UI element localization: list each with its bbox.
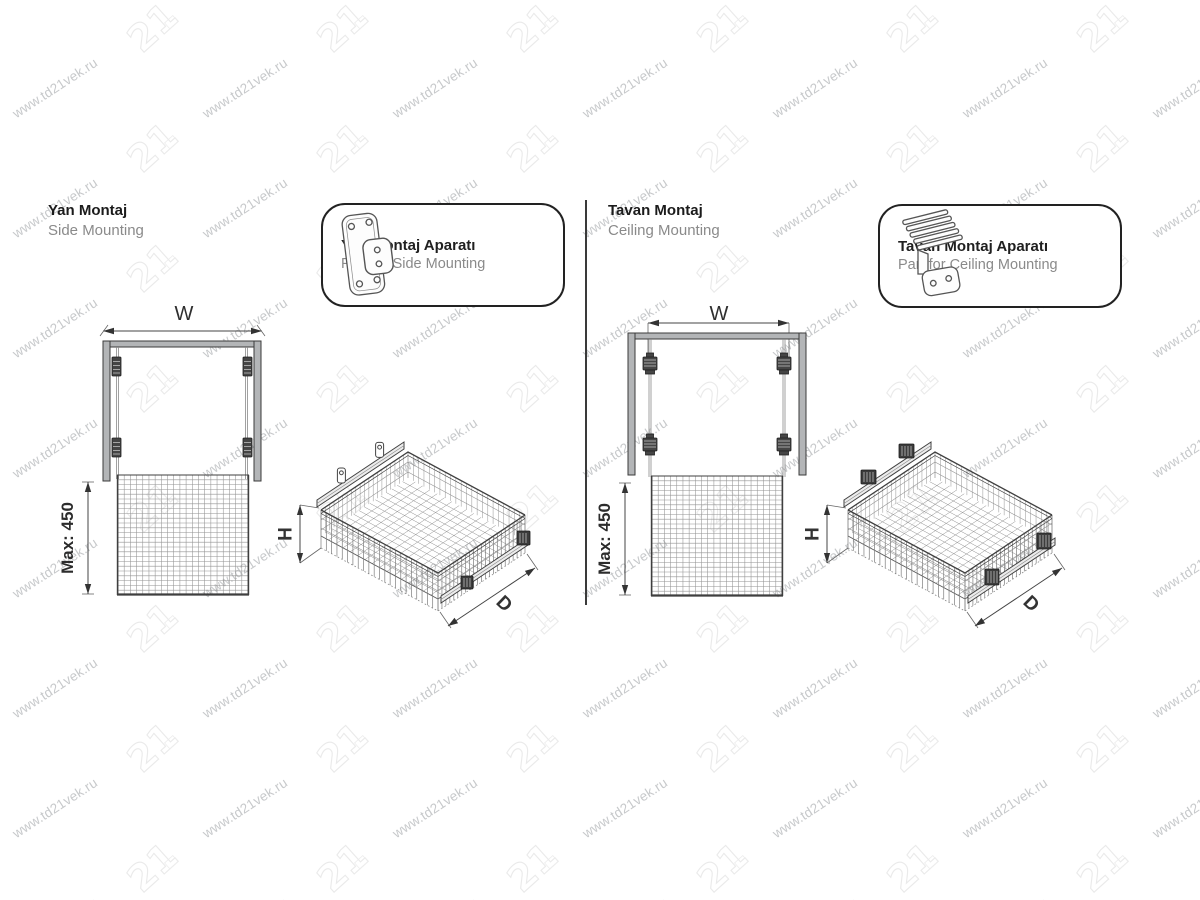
ceiling-part-box: Tavan Montaj Aparatı Part for Ceiling Mo… xyxy=(878,204,1122,308)
diagram-canvas: 212121212121www.td21vek.ruwww.td21vek.ru… xyxy=(0,0,1200,900)
side-part-box: Yan Montaj Aparatı Part for Side Mountin… xyxy=(321,203,565,307)
ceiling-front-view: W xyxy=(598,293,820,607)
back-slide-rail xyxy=(844,442,931,507)
back-right-wall-wires xyxy=(935,452,1052,541)
depth-dim-label: D xyxy=(492,592,516,617)
width-dim-label: W xyxy=(175,303,194,325)
section-title: Tavan Montaj xyxy=(608,201,720,221)
ceiling-mounting-title-block: Tavan Montaj Ceiling Mounting xyxy=(608,201,720,241)
back-right-wall-wires xyxy=(408,452,525,541)
section-title: Yan Montaj xyxy=(48,201,144,221)
side-mounting-title-block: Yan Montaj Side Mounting xyxy=(48,201,144,241)
max-height-label: Max: 450 xyxy=(595,503,614,575)
front-left-wall-wires xyxy=(321,510,438,611)
side-front-view: W xyxy=(60,293,272,607)
width-dim-label: W xyxy=(710,303,729,325)
depth-dim-label: D xyxy=(1019,592,1043,617)
back-slide-rail xyxy=(317,442,404,507)
side-rails xyxy=(117,347,248,479)
ceiling-iso-view: H D xyxy=(815,428,1100,640)
wire-basket-mesh xyxy=(118,475,248,595)
ceiling-mounting-part-icon xyxy=(898,210,964,302)
width-dimension: W xyxy=(100,303,265,336)
side-mounting-part-icon xyxy=(341,210,395,300)
max-height-label: Max: 450 xyxy=(58,502,77,574)
ceiling-mount-brackets xyxy=(643,353,791,455)
front-left-wall-wires xyxy=(848,510,965,611)
section-subtitle: Ceiling Mounting xyxy=(608,221,720,241)
cabinet-frame xyxy=(103,341,261,481)
section-subtitle: Side Mounting xyxy=(48,221,144,241)
height-dimension: H xyxy=(276,505,322,563)
max-height-dimension: Max: 450 xyxy=(58,482,94,594)
height-dim-label: H xyxy=(803,527,824,541)
side-iso-view: H D xyxy=(288,428,573,640)
section-divider xyxy=(585,200,587,605)
side-mount-brackets xyxy=(112,357,252,457)
height-dim-label: H xyxy=(276,527,297,541)
wire-basket-mesh xyxy=(652,476,782,596)
hanging-rods xyxy=(649,339,785,477)
max-height-dimension: Max: 450 xyxy=(595,483,631,595)
width-dimension: W xyxy=(648,303,789,357)
diagram-content: Yan Montaj Side Mounting Yan Montaj Apar… xyxy=(0,0,1200,900)
